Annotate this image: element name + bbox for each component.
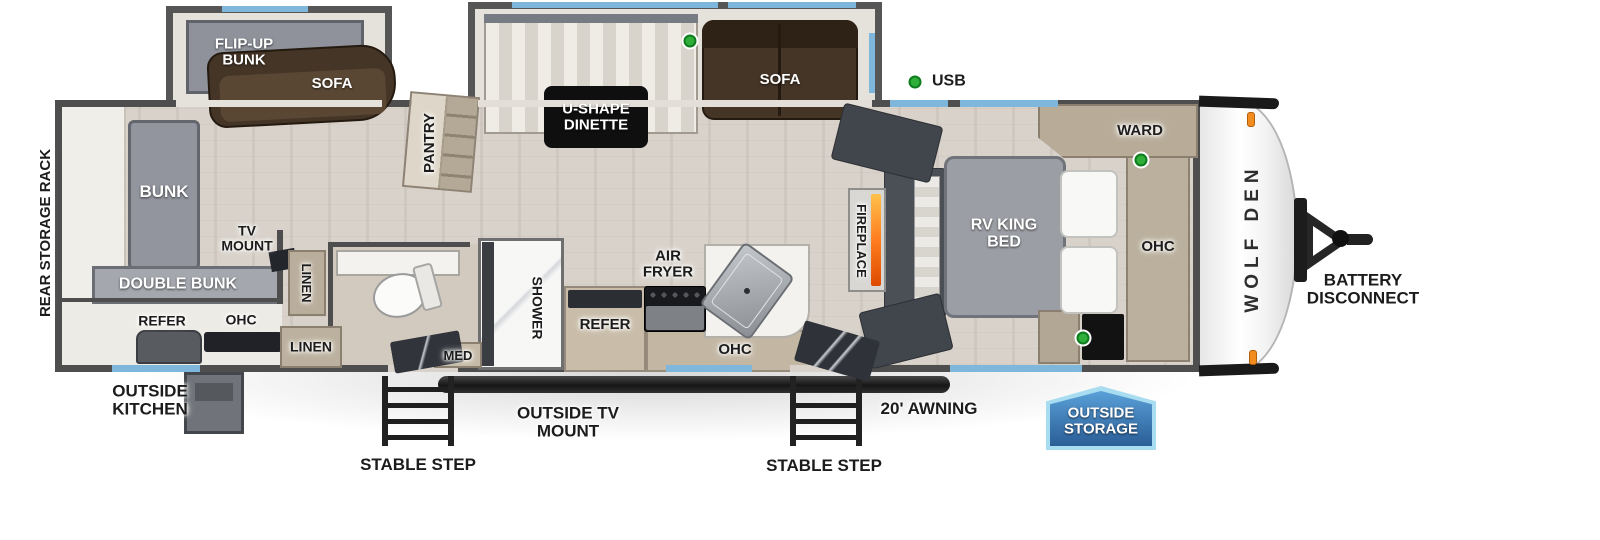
bedroom-bench [1038,310,1080,364]
cooktop-burners [648,291,702,300]
kitchen-window [666,365,752,372]
outside-kitchen-counter [204,332,282,352]
stable-step-left-ladder [382,376,454,446]
bed-head-tv-panel [914,176,940,310]
bedroom-window [950,365,1082,372]
battery-disconnect-label: BATTERY DISCONNECT [1297,271,1429,306]
kitchen-refer-label: REFER [580,317,631,333]
bunk-label: BUNK [139,183,188,201]
outside-kitchen-ohc-label: OHC [225,313,256,328]
hitch-jack-bar [1294,198,1307,282]
bunkhouse-slideout-opening [176,100,382,107]
hitch-stinger [1347,234,1373,245]
bunkhouse-sofa-seat [219,68,387,123]
top-wall-window-1 [890,100,948,107]
pantry-label: PANTRY [422,113,438,173]
tv-mount-label: TV MOUNT [218,223,276,252]
shower-door [482,242,494,366]
awning-tube [438,376,950,393]
outside-kitchen-window [112,365,200,372]
pantry-cabinet [402,91,480,193]
usb-indicator-ward-icon [1135,154,1148,167]
linen-upper-label: LINEN [299,264,313,303]
brand-logo: WOLF DEN [1243,163,1263,312]
dinette-slideout-window-right [728,2,856,8]
floorplan-canvas: REAR STORAGE RACK BUNK DOUBLE BUNK TV MO… [0,0,1600,540]
outside-storage-label: OUTSIDE STORAGE [1058,405,1144,436]
usb-indicator-bedroom-icon [1077,332,1090,345]
bedroom-ohc-label: OHC [1141,239,1174,255]
bathroom-wall-top [328,242,470,247]
outside-kitchen-label: OUTSIDE KITCHEN [105,382,195,417]
bunkhouse-sofa-label: SOFA [312,76,353,92]
stable-step-right-ladder [790,376,862,446]
top-wall-window-2 [960,100,1058,107]
range-oven-front [646,306,704,330]
living-sofa-label: SOFA [760,72,801,88]
bunkhouse-slideout-window [222,6,308,12]
dinette-slideout-opening [478,100,872,107]
med-label: MED [444,349,473,363]
air-fryer-label: AIR FRYER [639,248,697,279]
bed-pillow-bottom [1060,246,1118,314]
usb-legend-label: USB [932,74,966,91]
usb-legend-icon [909,76,922,89]
marker-light-bottom-icon [1249,350,1257,365]
front-cap-trim-bottom [1199,363,1279,377]
ward-label: WARD [1117,123,1163,139]
dinette-bench-edge [484,14,698,23]
outside-kitchen-room-wall [62,298,282,302]
kitchen-ohc-label: OHC [718,342,751,358]
fireplace-label: FIREPLACE [854,204,868,278]
dinette-slideout-window-left [512,2,718,8]
outside-kitchen-slide-panel [195,383,233,401]
outside-kitchen-refrigerator [136,330,202,364]
linen-lower-label: LINEN [290,340,332,355]
flip-up-bunk-label: FLIP-UP BUNK [201,36,287,67]
outside-tv-mount-label: OUTSIDE TV MOUNT [512,404,624,439]
kitchen-refrigerator-top [568,290,642,308]
fireplace-flame [871,194,881,286]
stable-step-left-label: STABLE STEP [360,456,476,474]
rv-king-bed-label: RV KING BED [964,217,1044,250]
rear-storage-rack-label: REAR STORAGE RACK [38,149,54,317]
hitch-coupler [1332,230,1349,247]
u-shape-dinette-label: U-SHAPE DINETTE [549,101,643,132]
dinette-slideout-side-window [869,33,875,93]
outside-kitchen-refer-label: REFER [138,314,185,329]
awning-label: 20' AWNING [881,400,978,418]
bedroom-ohc-cabinet [1126,152,1190,362]
usb-indicator-dinette-icon [684,35,697,48]
shower-label: SHOWER [530,277,545,340]
double-bunk-label: DOUBLE BUNK [119,277,237,294]
bed-pillow-top [1060,170,1118,238]
pantry-drawers [440,96,478,190]
marker-light-top-icon [1247,112,1255,127]
stable-step-right-label: STABLE STEP [766,457,882,475]
